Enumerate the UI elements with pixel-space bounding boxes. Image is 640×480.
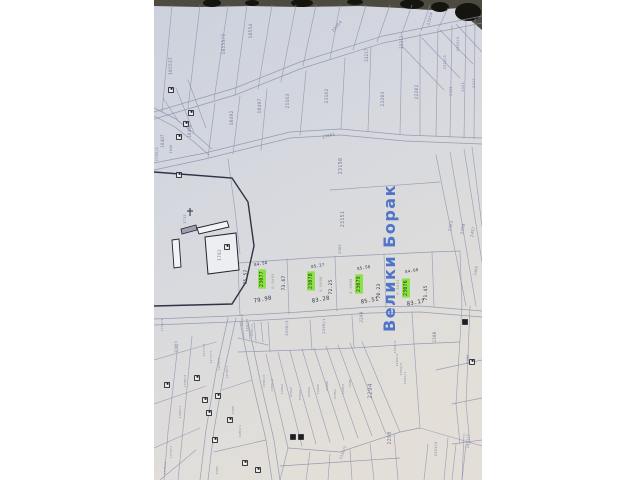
house-dot xyxy=(205,398,207,400)
parcel-label: 2296/2 xyxy=(284,320,289,336)
parcel-label: 1793/1 xyxy=(155,147,159,161)
parcel-label: 2282 xyxy=(215,466,219,474)
highlighted-parcel-label: 23078 xyxy=(308,273,314,289)
parcel-label: 1779/1 xyxy=(169,446,173,459)
parcel-label: 2369 xyxy=(338,244,342,254)
house-icon xyxy=(213,438,218,443)
house-dot xyxy=(197,376,199,378)
parcel-label: 17803 xyxy=(174,341,178,353)
place-name-label: Велики Борак xyxy=(380,184,399,332)
house-dot xyxy=(191,111,193,113)
house-dot xyxy=(245,461,247,463)
highlighted-parcel-label: 23076 xyxy=(403,280,409,296)
house-dot xyxy=(179,135,181,137)
parcel-label: 2278/3 xyxy=(217,358,221,371)
house-icon xyxy=(291,435,296,440)
parcel-label: 2290 xyxy=(387,431,393,444)
house-icon xyxy=(165,383,170,388)
parcel-label: 18498 xyxy=(187,124,192,138)
parcel-label: 2295 xyxy=(348,379,352,387)
parcel-label: 22946 xyxy=(325,381,329,392)
survey-measurement: 73.67 xyxy=(281,275,287,290)
parcel-label: 22202 xyxy=(414,84,420,99)
parcel-label: 1790/3 xyxy=(160,319,164,332)
survey-measurement: 75.57 xyxy=(243,269,249,284)
house-icon xyxy=(195,376,200,381)
parcel-label: 2321 xyxy=(461,82,465,92)
parcel-label: 2277/3 xyxy=(202,344,206,357)
parcel-label: 2299 xyxy=(359,311,364,322)
house-icon xyxy=(299,435,304,440)
building-vertical xyxy=(172,239,181,268)
pencil-note: 0.6086 xyxy=(318,276,323,292)
parcel-label: 2297/2 xyxy=(245,319,249,332)
parcel-label: 2293/1 xyxy=(403,372,407,385)
house-dot xyxy=(258,468,260,470)
parcel-label: 18497 xyxy=(257,98,263,113)
backdrop-blob xyxy=(431,2,449,12)
house-icon xyxy=(177,173,182,178)
parcel-label: 2486 xyxy=(466,354,470,364)
parcel-label: 18407 xyxy=(160,134,165,148)
parcel-label: 18553/5 xyxy=(221,33,227,54)
parcel-label: 1782 xyxy=(217,249,223,261)
map-paper xyxy=(154,0,482,480)
house-icon xyxy=(189,111,194,116)
parcel-label: 1780/1 xyxy=(178,406,182,419)
parcel-label: 1733 xyxy=(183,214,187,224)
house-icon xyxy=(169,88,174,93)
parcel-label: 2283/1 xyxy=(238,425,242,438)
house-dot xyxy=(230,418,232,420)
parcel-label: 23162 xyxy=(324,88,330,103)
house-dot xyxy=(171,88,173,90)
house-icon xyxy=(470,360,475,365)
house-icon xyxy=(463,320,468,325)
house-icon xyxy=(203,398,208,403)
parcel-label: 22944 xyxy=(307,387,311,398)
house-icon xyxy=(177,135,182,140)
parcel-label: 2322 xyxy=(449,86,453,96)
parcel-label: 18492 xyxy=(229,110,235,125)
parcel-label: 22943 xyxy=(298,390,302,401)
parcel-label: 18554 xyxy=(248,23,254,38)
highlighted-parcel-label: 23079 xyxy=(356,276,362,292)
parcel-label: 22952 xyxy=(333,389,337,400)
survey-measurement: 72.25 xyxy=(328,279,334,294)
house-dot xyxy=(472,360,474,362)
house-icon xyxy=(243,461,248,466)
parcel-label: 23150 xyxy=(338,158,344,175)
house-icon xyxy=(207,411,212,416)
parcel-label: 2300 xyxy=(432,331,437,342)
cadastral-map-photo: 18553718553/5185542335423217233122325423… xyxy=(0,0,640,480)
house-dot xyxy=(179,173,181,175)
parcel-label: 2325/4 xyxy=(456,37,460,51)
parcel-label: 185537 xyxy=(168,57,174,75)
parcel-label: 1846 xyxy=(169,145,173,154)
house-dot xyxy=(209,411,211,413)
house-dot xyxy=(167,383,169,385)
parcel-label: 23312 xyxy=(399,35,404,49)
house-icon xyxy=(216,394,221,399)
parcel-label: 23217 xyxy=(364,48,369,62)
parcel-label: 21163 xyxy=(285,93,291,108)
house-dot xyxy=(186,122,188,124)
parcel-label: 2317 xyxy=(472,78,476,88)
parcel-label: 2280/2 xyxy=(262,375,266,388)
parcel-label: 2297/1 xyxy=(250,324,254,337)
house-rect xyxy=(463,320,468,325)
parcel-label: 2298/2 xyxy=(240,314,244,327)
parcel-label: 1775/2 xyxy=(163,462,167,475)
parcel-label: 2292/3 xyxy=(393,341,397,354)
house-rect xyxy=(291,435,296,440)
parcel-label: 2277/1 xyxy=(209,351,213,364)
screenshot-root: 18553718553/5185542335423217233122325423… xyxy=(0,0,640,480)
house-dot xyxy=(227,245,229,247)
house-icon xyxy=(256,468,261,473)
parcel-label: 2280/3 xyxy=(270,379,274,392)
house-dot xyxy=(218,394,220,396)
backdrop-blob xyxy=(455,3,481,21)
house-icon xyxy=(228,418,233,423)
parcel-label: 23151 xyxy=(340,211,346,228)
parcel-label: 2322/1 xyxy=(443,55,447,69)
parcel-label: 22953 xyxy=(341,384,345,395)
pencil-note: 0.5083 xyxy=(270,273,275,289)
parcel-label: 22945 xyxy=(316,384,320,395)
parcel-label: 2493/1 xyxy=(466,434,470,448)
parcel-label: 2278/1 xyxy=(225,366,229,379)
parcel-label: 1780/4 xyxy=(183,375,187,388)
house-icon xyxy=(225,245,230,250)
pencil-note: 0.5085 xyxy=(348,278,353,294)
house-rect xyxy=(299,435,304,440)
house-dot xyxy=(215,438,217,440)
highlighted-parcel-label: 23077 xyxy=(259,271,265,287)
parcel-label: 2285 xyxy=(231,406,235,414)
parcel-label: 2391/4 xyxy=(434,442,438,456)
parcel-label: 23203 xyxy=(380,91,386,106)
parcel-label: 2296/1 xyxy=(321,318,326,334)
parcel-label: 22941 xyxy=(280,384,284,395)
parcel-label: 2294 xyxy=(367,383,374,399)
parcel-label: 22942 xyxy=(289,387,293,398)
